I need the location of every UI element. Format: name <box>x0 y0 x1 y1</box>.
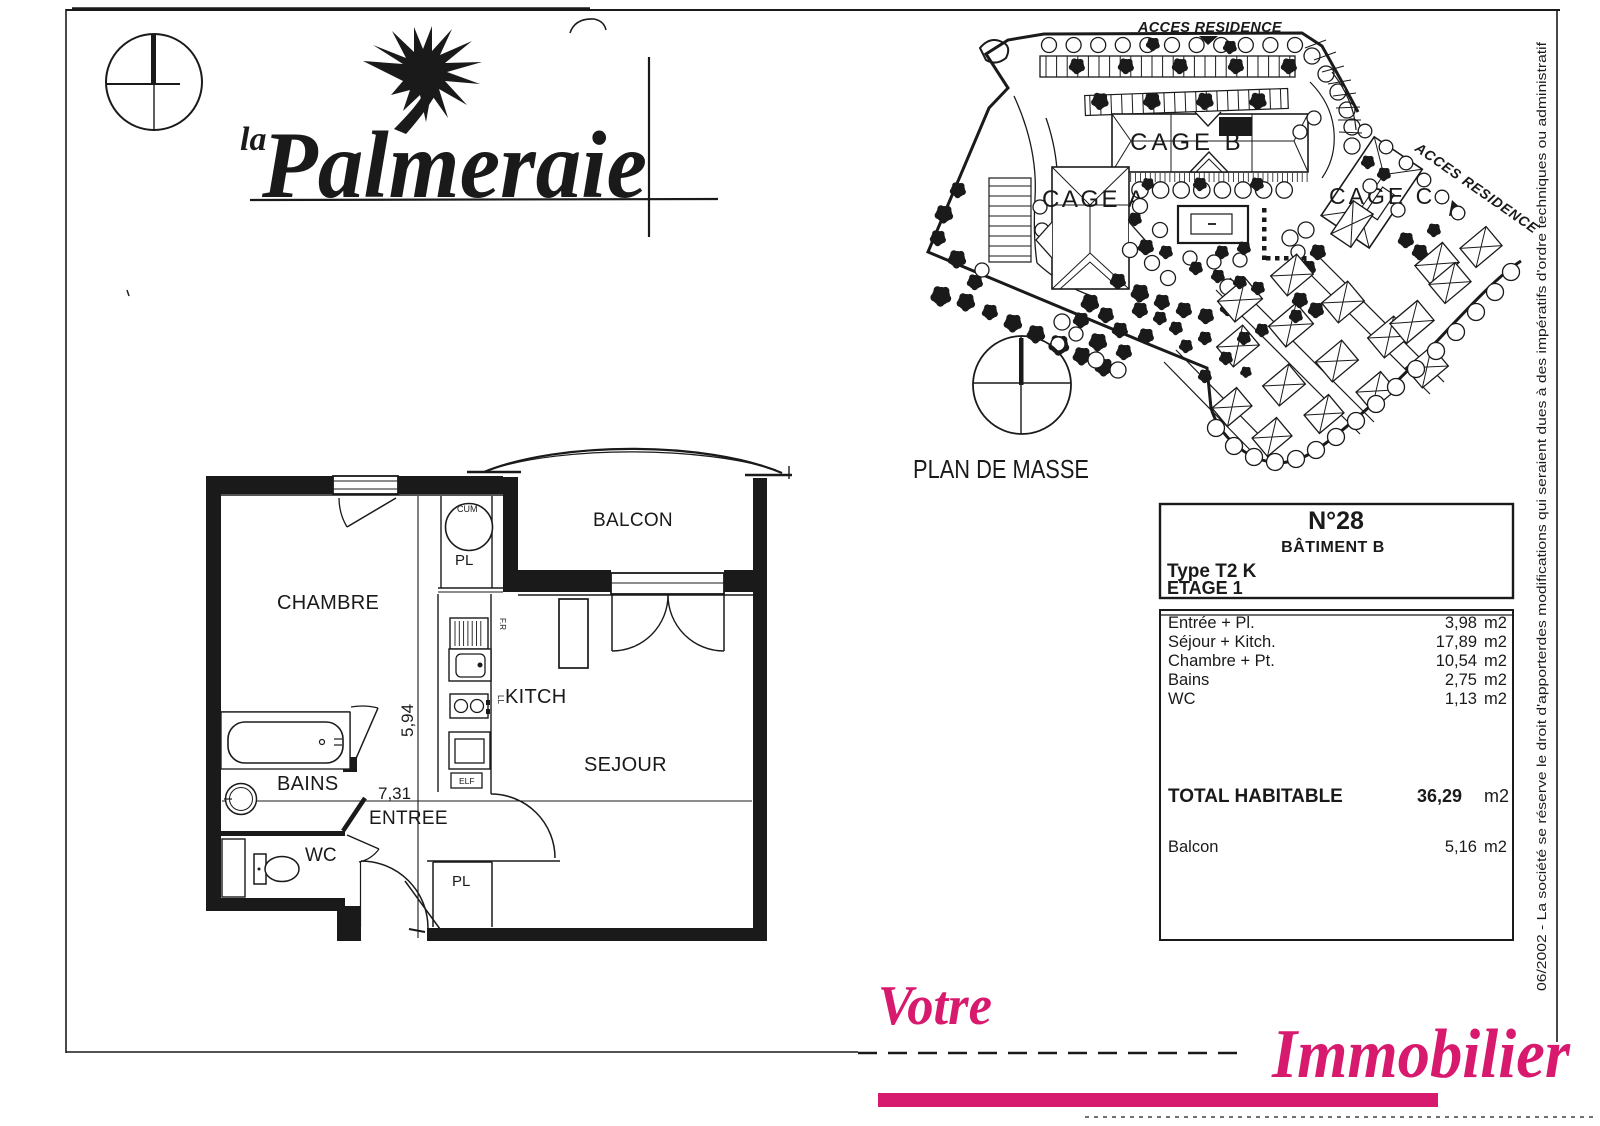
svg-text:CHAMBRE: CHAMBRE <box>277 592 379 614</box>
svg-text:TOTAL HABITABLE: TOTAL HABITABLE <box>1168 786 1343 807</box>
svg-text:5,16: 5,16 <box>1445 838 1477 856</box>
svg-text:PLAN DE MASSE: PLAN DE MASSE <box>913 454 1089 484</box>
svg-text:CAGE A: CAGE A <box>1042 186 1146 213</box>
svg-text:ACCES RESIDENCE: ACCES RESIDENCE <box>1137 20 1283 36</box>
svg-text:Immobilier: Immobilier <box>1271 1016 1571 1093</box>
svg-text:ELF: ELF <box>459 776 475 786</box>
svg-text:06/2002 - La société se réserv: 06/2002 - La société se réserve le droit… <box>1534 42 1549 991</box>
svg-text:SEJOUR: SEJOUR <box>584 754 667 776</box>
svg-text:ETAGE 1: ETAGE 1 <box>1167 578 1243 598</box>
svg-text:Entrée + Pl.: Entrée + Pl. <box>1168 614 1255 632</box>
svg-text:BALCON: BALCON <box>593 510 673 531</box>
svg-text:BÂTIMENT B: BÂTIMENT B <box>1281 537 1385 556</box>
svg-text:m2: m2 <box>1484 614 1507 632</box>
svg-text:Bains: Bains <box>1168 671 1209 689</box>
svg-text:ENTREE: ENTREE <box>369 808 448 829</box>
svg-text:Chambre + Pt.: Chambre + Pt. <box>1168 652 1275 670</box>
svg-text:WC: WC <box>1168 690 1196 708</box>
svg-text:m2: m2 <box>1484 838 1507 856</box>
svg-text:Votre: Votre <box>878 975 992 1037</box>
svg-text:LL: LL <box>496 695 505 704</box>
svg-text:2,75: 2,75 <box>1445 671 1477 689</box>
svg-text:7,31: 7,31 <box>378 784 411 803</box>
svg-text:CUM: CUM <box>457 504 478 514</box>
svg-text:F.R: F.R <box>498 618 507 630</box>
svg-text:PL: PL <box>455 552 473 569</box>
svg-text:Séjour + Kitch.: Séjour + Kitch. <box>1168 633 1276 651</box>
svg-text:m2: m2 <box>1484 690 1507 708</box>
svg-text:3,98: 3,98 <box>1445 614 1477 632</box>
svg-text:10,54: 10,54 <box>1436 652 1477 670</box>
svg-text:17,89: 17,89 <box>1436 633 1477 651</box>
svg-text:KITCH: KITCH <box>505 686 567 708</box>
svg-text:Balcon: Balcon <box>1168 838 1218 856</box>
svg-text:BAINS: BAINS <box>277 773 339 795</box>
svg-text:Palmeraie: Palmeraie <box>261 112 647 218</box>
svg-text:N°28: N°28 <box>1308 507 1364 535</box>
svg-text:m2: m2 <box>1484 633 1507 651</box>
svg-text:1,13: 1,13 <box>1445 690 1477 708</box>
svg-text:CAGE B: CAGE B <box>1130 129 1245 156</box>
svg-text:5,94: 5,94 <box>398 704 417 737</box>
svg-text:36,29: 36,29 <box>1417 786 1462 806</box>
svg-text:PL: PL <box>452 873 470 890</box>
svg-text:m2: m2 <box>1484 671 1507 689</box>
svg-text:CAGE C: CAGE C <box>1329 183 1435 209</box>
svg-text:m2: m2 <box>1484 652 1507 670</box>
svg-text:m2: m2 <box>1484 786 1509 806</box>
svg-text:WC: WC <box>305 845 337 866</box>
